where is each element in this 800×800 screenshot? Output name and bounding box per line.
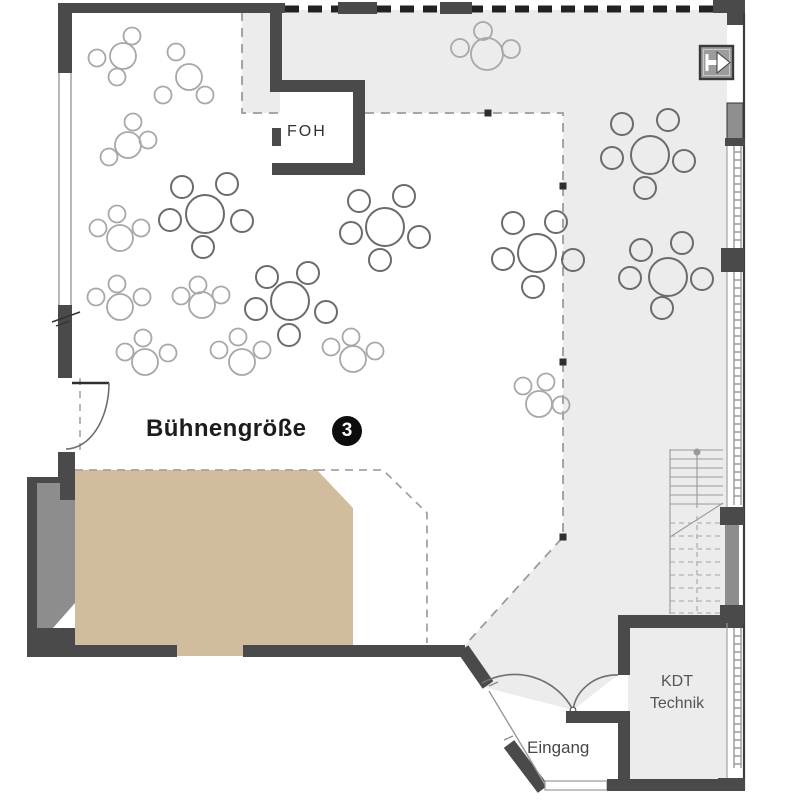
chair — [135, 330, 152, 347]
chair — [256, 266, 278, 288]
chair — [393, 185, 415, 207]
chair — [230, 329, 247, 346]
table-top — [366, 208, 404, 246]
chair — [140, 132, 157, 149]
right-window-3 — [734, 628, 741, 768]
4-seat-table — [173, 277, 230, 319]
exit-icon — [700, 46, 733, 79]
chair — [197, 87, 214, 104]
window-mullion-3 — [720, 507, 744, 525]
chair — [90, 220, 107, 237]
entrance-glass-panel — [545, 781, 607, 790]
chair — [101, 149, 118, 166]
stage-area — [75, 470, 427, 656]
chair — [171, 176, 193, 198]
chair — [278, 324, 300, 346]
chair — [340, 222, 362, 244]
chair — [522, 276, 544, 298]
chair — [160, 345, 177, 362]
chair — [515, 378, 532, 395]
chair — [502, 212, 524, 234]
chair — [538, 374, 555, 391]
chair — [159, 209, 181, 231]
window-mullion-4 — [720, 605, 744, 623]
4-seat-table — [117, 330, 177, 376]
stage-size-label: Bühnengröße — [146, 415, 306, 443]
right-window-1 — [734, 145, 741, 248]
table-top — [229, 349, 255, 375]
chair — [211, 342, 228, 359]
top-right-corner-wall — [713, 0, 745, 13]
4-seat-table — [101, 114, 157, 166]
table-top — [189, 292, 215, 318]
chair — [134, 289, 151, 306]
chair — [367, 343, 384, 360]
entrance-label: Eingang — [527, 738, 589, 758]
stage-bottom-wall-left — [27, 645, 177, 657]
right-window-2 — [734, 272, 741, 505]
chair — [245, 298, 267, 320]
chair — [133, 220, 150, 237]
kdt-technik-label: KDTTechnik — [627, 671, 727, 715]
4-seat-table — [89, 28, 141, 86]
table-top — [186, 195, 224, 233]
6-seat-table — [159, 173, 253, 258]
4-seat-table — [211, 329, 271, 376]
chair — [231, 210, 253, 232]
chair — [315, 301, 337, 323]
boundary-marker — [560, 359, 567, 366]
4-seat-table — [155, 44, 214, 104]
6-seat-table — [245, 262, 337, 346]
boundary-markers — [485, 110, 567, 541]
table-top — [107, 225, 133, 251]
table-top — [176, 64, 202, 90]
left-door-swing-arc — [66, 383, 109, 449]
chair — [125, 114, 142, 131]
chair — [109, 276, 126, 293]
table-top — [340, 346, 366, 372]
stage-size-badge: 3 — [332, 416, 362, 446]
kdt-label-line2: Technik — [650, 695, 704, 712]
chair — [192, 236, 214, 258]
chair — [155, 87, 172, 104]
chair — [124, 28, 141, 45]
kdt-label-line1: KDT — [661, 673, 693, 690]
boundary-marker — [485, 110, 492, 117]
chair — [254, 342, 271, 359]
4-seat-table — [88, 276, 151, 321]
chair — [89, 50, 106, 67]
4-seat-table — [515, 374, 570, 418]
foh-label: FOH — [287, 123, 327, 141]
chair — [213, 287, 230, 304]
chair — [173, 288, 190, 305]
chair — [492, 248, 514, 270]
table-top — [518, 234, 556, 272]
right-wall-pier — [725, 525, 739, 605]
left-wall — [52, 3, 80, 480]
left-window — [58, 73, 72, 305]
stage-floor — [75, 470, 353, 656]
stair-newel-post — [694, 449, 701, 456]
chair — [168, 44, 185, 61]
chair — [369, 249, 391, 271]
4-seat-table — [90, 206, 150, 252]
chair — [109, 206, 126, 223]
table-top — [110, 43, 136, 69]
table-top — [115, 132, 141, 158]
table-top — [107, 294, 133, 320]
chair — [216, 173, 238, 195]
chair — [408, 226, 430, 248]
chair — [109, 69, 126, 86]
chair — [190, 277, 207, 294]
chair — [88, 289, 105, 306]
boundary-marker — [560, 534, 567, 541]
window-mullion-1 — [727, 103, 743, 139]
chair — [343, 329, 360, 346]
table-top — [271, 282, 309, 320]
table-top — [526, 391, 552, 417]
chair — [323, 339, 340, 356]
chair — [348, 190, 370, 212]
floor-plan: Bühnengröße 3 FOH KDTTechnik Eingang — [0, 0, 800, 800]
boundary-marker — [560, 183, 567, 190]
left-door — [66, 378, 109, 452]
window-mullion-2 — [721, 248, 744, 272]
bottom-right-corner-wall — [718, 778, 745, 791]
4-seat-table — [323, 329, 384, 373]
table-top — [132, 349, 158, 375]
6-seat-table — [340, 185, 430, 271]
chair — [297, 262, 319, 284]
chair — [117, 344, 134, 361]
